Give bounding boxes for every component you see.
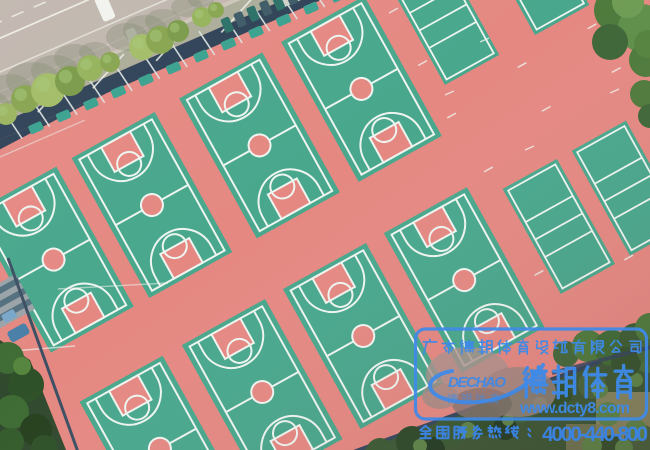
svg-text:DECHAO: DECHAO: [448, 374, 506, 391]
svg-text:4000-440-800: 4000-440-800: [542, 423, 648, 446]
svg-text:www.dcty8.com: www.dcty8.com: [519, 400, 630, 417]
